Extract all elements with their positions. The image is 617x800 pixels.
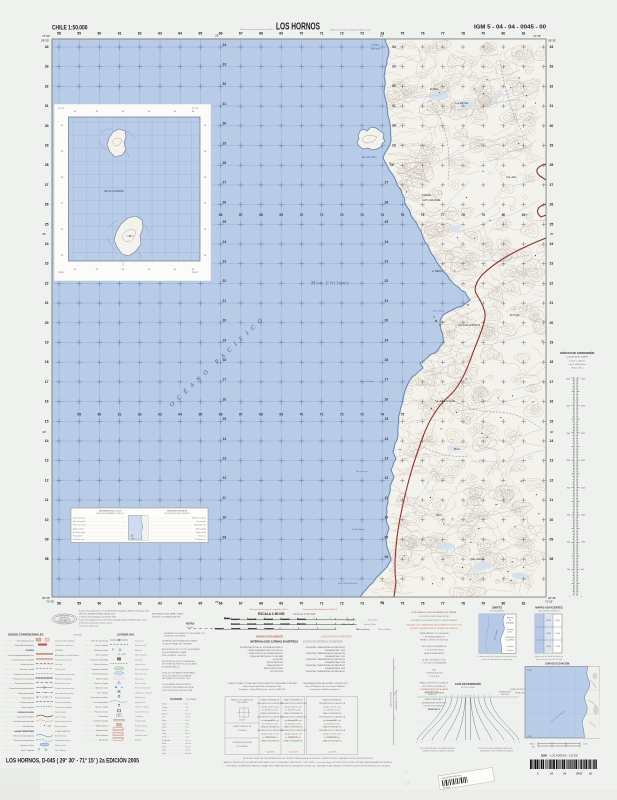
svg-text:79: 79: [481, 32, 485, 36]
svg-text:COSTEROS PROVIENEN DEL SHOA: COSTEROS PROVIENEN DEL SHOA: [162, 686, 194, 689]
svg-text:CONTOUR INTERVAL 50 METERS: CONTOUR INTERVAL 50 METERS: [303, 641, 343, 644]
svg-text:El Olivo: El Olivo: [430, 87, 439, 91]
svg-text:Pta. Cruz del Pecho: Pta. Cruz del Pecho: [337, 582, 358, 585]
svg-text:21: 21: [385, 299, 389, 303]
svg-text:72: 72: [340, 413, 344, 417]
svg-text:15: 15: [223, 417, 227, 421]
svg-text:x 235: x 235: [121, 654, 125, 656]
svg-text:Límite comunal: Límite comunal: [21, 706, 34, 709]
svg-text:Power transmission line: Power transmission line: [55, 687, 74, 690]
svg-text:29°30': 29°30': [41, 39, 49, 43]
svg-text:32: 32: [392, 84, 396, 88]
svg-text:Rock in water: Rock in water: [135, 682, 147, 685]
svg-text:DEPARTAMENTO DE GEODESIA: DEPARTAMENTO DE GEODESIA: [420, 632, 450, 635]
svg-text:Caleta de pescadores: Caleta de pescadores: [90, 696, 108, 699]
svg-text:UNIVERSAL TRANSVERSAL DE MERCA: UNIVERSAL TRANSVERSAL DE MERCATOR: [306, 646, 346, 649]
svg-text:Windmill: Windmill: [135, 650, 143, 652]
svg-text:Pta. Choros: Pta. Choros: [432, 310, 445, 313]
svg-text:26: 26: [550, 203, 554, 207]
svg-text:12: 12: [45, 478, 49, 482]
svg-text:24: 24: [223, 240, 227, 244]
svg-text:Trail or track: Trail or track: [55, 668, 65, 671]
svg-text:VARÍA 8' ANUALMENTE: VARÍA 8' ANUALMENTE: [424, 652, 445, 655]
svg-text:Cove: Cove: [185, 707, 189, 709]
svg-text:34: 34: [45, 45, 49, 49]
svg-text:25: 25: [550, 222, 554, 226]
svg-text:Landing strip: Landing strip: [135, 720, 146, 723]
svg-text:67: 67: [239, 32, 243, 36]
svg-text:22: 22: [45, 281, 49, 285]
svg-text:Historic ruins: Historic ruins: [135, 663, 146, 666]
svg-text:NOMBRES QUE FIGURAN EN EL MAPA: NOMBRES QUE FIGURAN EN EL MAPA Y: [162, 640, 198, 643]
svg-text:LÍMITE DE COSTA: LÍMITE DE COSTA: [390, 692, 393, 708]
svg-text:21: 21: [223, 299, 227, 303]
svg-text:68: 68: [259, 413, 263, 417]
svg-text:Sendero o huella: Sendero o huella: [20, 668, 35, 671]
svg-text:20: 20: [223, 319, 227, 323]
svg-text:76: 76: [421, 32, 425, 36]
svg-text:08: 08: [550, 557, 554, 561]
svg-text:800: 800: [567, 487, 570, 489]
svg-text:Aeródromo: Aeródromo: [99, 739, 108, 742]
svg-text:65: 65: [199, 602, 203, 606]
svg-text:74: 74: [380, 413, 384, 417]
svg-text:66: 66: [219, 413, 223, 417]
svg-text:CUADRÍCULA UTM: CUADRÍCULA UTM: [426, 672, 443, 675]
svg-text:D-040: D-040: [546, 620, 551, 622]
svg-text:79: 79: [481, 213, 485, 217]
svg-text:Bay: Bay: [185, 704, 188, 706]
svg-text:08: 08: [45, 557, 49, 561]
svg-text:Metros | Pies: Metros | Pies: [572, 366, 583, 369]
svg-text:67: 67: [239, 213, 243, 217]
svg-text:ESTE MAPA NO DEROGA MAPAS QUE: ESTE MAPA NO DEROGA MAPAS QUE TRATAN: [412, 611, 457, 614]
svg-text:La demarcación de los límites: La demarcación de los límites de este ma…: [478, 655, 517, 658]
svg-text:Knoll: Knoll: [185, 727, 190, 729]
svg-text:GEOGRÁFICO: GEOGRÁFICO: [59, 620, 71, 623]
svg-text:LISTA DE TOPÓNIMOS: LISTA DE TOPÓNIMOS: [164, 635, 186, 638]
svg-text:Proyección y publicación a esc: Proyección y publicación a escala del In…: [79, 610, 149, 613]
svg-text:32: 32: [223, 82, 227, 86]
svg-text:200: 200: [567, 569, 570, 571]
svg-text:Referencia espacial: Referencia espacial: [192, 518, 207, 520]
svg-text:Llano: Llano: [162, 723, 167, 725]
svg-text:All weather road hard surface: All weather road hard surface: [55, 654, 79, 657]
svg-text:PARA DETERMINAR LA: PARA DETERMINAR LA: [261, 739, 280, 742]
svg-text:27: 27: [550, 183, 554, 187]
svg-text:75: 75: [401, 32, 405, 36]
svg-text:DE ESTE DOCUMENTO: DE ESTE DOCUMENTO: [424, 706, 446, 708]
svg-text:10: 10: [346, 618, 348, 620]
svg-text:30: 30: [550, 124, 554, 128]
svg-text:75: 75: [401, 602, 405, 606]
svg-text:lea 100.000 m al este: lea 100.000 m al este: [262, 709, 278, 712]
svg-text:62: 62: [138, 602, 142, 606]
svg-text:60: 60: [98, 32, 102, 36]
svg-text:ejemplo: punto de carta: ejemplo: punto de carta: [323, 705, 341, 708]
svg-text:UNIVERSAL TRANSVERSAL DE MERCA: UNIVERSAL TRANSVERSAL DE MERCATOR: [306, 658, 346, 661]
svg-text:73: 73: [360, 32, 364, 36]
svg-text:Statute Miles: Statute Miles: [364, 623, 376, 626]
svg-text:09: 09: [45, 538, 49, 542]
svg-text:QUE FIGURAN EN EL MAPA: QUE FIGURAN EN EL MAPA: [162, 651, 187, 654]
svg-text:5200: 5200: [581, 379, 585, 381]
svg-text:Pta. del Olivo: Pta. del Olivo: [361, 156, 377, 159]
svg-text:Camino de ripio transitable: Camino de ripio transitable: [12, 659, 34, 662]
svg-text:C.4: C.4: [404, 782, 409, 786]
svg-text:16: 16: [223, 397, 227, 401]
svg-text:INFORMACIÓN DEL MAPA O PARA: INFORMACIÓN DEL MAPA O PARA: [152, 613, 183, 616]
svg-text:17: 17: [550, 380, 554, 384]
svg-text:Carta 5070: Carta 5070: [266, 736, 275, 739]
svg-text:71°15': 71°15': [533, 34, 541, 38]
svg-text:Y DEL DERROTERO DE LA COSTA: Y DEL DERROTERO DE LA COSTA: [162, 689, 193, 692]
svg-text:CIFRAS ALTIMÉTRICAS / N. DEL M: CIFRAS ALTIMÉTRICAS / N. DEL MAR: [250, 655, 284, 658]
svg-text:71°50': 71°50': [58, 108, 65, 110]
svg-text:0: 0: [581, 596, 582, 598]
svg-text:LEGEND: LEGEND: [73, 635, 82, 637]
svg-text:LOS LÍMITES EN FORMA OFICIAL: LOS LÍMITES EN FORMA OFICIAL: [419, 615, 449, 618]
svg-text:71: 71: [320, 602, 324, 606]
svg-text:20: 20: [550, 321, 554, 325]
svg-text:81: 81: [522, 602, 526, 606]
svg-text:400: 400: [567, 542, 570, 544]
svg-text:1.000: 1.000: [583, 744, 587, 746]
svg-text:PARA DETERMINAR LA: PARA DETERMINAR LA: [261, 699, 280, 702]
svg-text:45: 45: [465, 695, 467, 697]
svg-text:Malla especial: Malla especial: [196, 528, 207, 530]
svg-text:Lighthouse - Beacon: Lighthouse - Beacon: [135, 691, 152, 694]
svg-text:Base: UTM (Plano 19) al sur, D: Base: UTM (Plano 19) al sur, Datum: PSAD…: [305, 685, 344, 688]
svg-text:lea 100.000 m al este: lea 100.000 m al este: [262, 722, 278, 725]
svg-text:Carta 5070: Carta 5070: [328, 751, 337, 754]
svg-text:Quebrada: Quebrada: [506, 629, 513, 631]
svg-text:20: 20: [385, 319, 389, 323]
svg-text:12: 12: [550, 478, 554, 482]
svg-text:Arrecife - Islote: Arrecife - Islote: [96, 687, 108, 690]
svg-text:Ferrocarril en uso normal: Ferrocarril en uso normal: [13, 678, 34, 681]
svg-text:3: 3: [264, 618, 265, 620]
svg-text:29°30': 29°30': [548, 39, 556, 43]
svg-text:71: 71: [320, 413, 324, 417]
svg-text:11: 11: [385, 496, 389, 500]
svg-text:73: 73: [360, 602, 364, 606]
svg-text:73: 73: [360, 213, 364, 217]
svg-text:20: 20: [45, 321, 49, 325]
svg-text:25: 25: [45, 222, 49, 226]
svg-text:de Mar: de Mar: [508, 632, 513, 634]
svg-text:lea 100.000 m al este: lea 100.000 m al este: [285, 709, 301, 712]
svg-text:INLAND WATERS: INLAND WATERS: [55, 730, 71, 733]
svg-text:33: 33: [223, 63, 227, 67]
svg-text:Ravine: Ravine: [185, 740, 191, 742]
svg-text:62: 62: [138, 413, 142, 417]
svg-text:71: 71: [320, 32, 324, 36]
svg-text:81: 81: [522, 32, 526, 36]
svg-text:27: 27: [45, 183, 49, 187]
svg-text:0: 0: [569, 596, 570, 598]
svg-text:PARA DETERMINAR LA: PARA DETERMINAR LA: [323, 739, 342, 742]
svg-text:Public building: Public building: [135, 726, 147, 728]
svg-text:13: 13: [385, 457, 389, 461]
svg-text:69: 69: [279, 602, 283, 606]
svg-text:Curva de nivel intermedia: Curva de nivel intermedia: [13, 720, 35, 723]
svg-text:CHILE MAPA OFICIAL DEL ESTADO,: CHILE MAPA OFICIAL DEL ESTADO, PROYECCIÓ…: [302, 682, 348, 685]
svg-text:LOS HORNOS, D-045 ( 29° 30' -: LOS HORNOS, D-045 ( 29° 30' - 71° 15' ) …: [6, 756, 139, 765]
svg-text:DESIGNACIÓN DE CUADRÍCULA: DESIGNACIÓN DE CUADRÍCULA: [280, 702, 307, 705]
svg-text:Valle: Valle: [162, 750, 166, 752]
svg-text:3900: 3900: [581, 433, 585, 435]
svg-text:19: 19: [45, 341, 49, 345]
svg-text:VIVIENDA: VIVIENDA: [25, 649, 34, 652]
svg-text:Fence or wall: Fence or wall: [135, 644, 147, 647]
svg-text:D-045: D-045: [546, 633, 551, 635]
svg-text:34: 34: [223, 43, 227, 47]
svg-text:edición convencional 1:50.000: edición convencional 1:50.000 IGM: [536, 659, 563, 661]
svg-text:14: 14: [385, 437, 389, 441]
svg-text:1 metro = 3.28 pies: 1 metro = 3.28 pies: [569, 360, 585, 363]
svg-text:22: 22: [385, 279, 389, 283]
svg-text:69: 69: [279, 213, 283, 217]
svg-text:DESIGNACIÓN DE CUADRÍCULA: DESIGNACIÓN DE CUADRÍCULA: [280, 729, 307, 732]
svg-text:79: 79: [481, 602, 485, 606]
svg-text:1° Edición Geomorfológica del: 1° Edición Geomorfológica del IGM de 199…: [79, 616, 116, 619]
svg-text:x 235: x 235: [47, 726, 51, 728]
svg-text:30: 30: [223, 122, 227, 126]
svg-text:INTERVALO DE CURVAS 50 METROS: INTERVALO DE CURVAS 50 METROS: [250, 640, 298, 644]
svg-text:77: 77: [441, 213, 445, 217]
svg-text:Cemetery: Cemetery: [135, 715, 143, 718]
svg-text:Beach: Beach: [185, 733, 190, 735]
svg-text:N° Clasificación: N° Clasificación: [195, 539, 206, 541]
svg-text:71°30': 71°30': [42, 34, 50, 38]
svg-text:78: 78: [461, 32, 465, 36]
svg-text:Metros: Metros: [224, 617, 230, 620]
svg-text:Military area: Military area: [135, 729, 146, 732]
svg-text:ejemplo: punto de carta: ejemplo: punto de carta: [323, 733, 341, 736]
svg-text:NOMBRES GEOGRÁFICOS DEL MAPA Y: NOMBRES GEOGRÁFICOS DEL MAPA Y SU: [164, 632, 206, 635]
svg-text:COQUIMBO: COQUIMBO: [506, 640, 516, 642]
svg-text:35': 35': [42, 232, 46, 236]
svg-text:Church - Chapel: Church - Chapel: [135, 706, 149, 709]
svg-text:Curva de nivel índice: Curva de nivel índice: [17, 716, 34, 719]
svg-text:27: 27: [223, 181, 227, 185]
svg-text:Airfield: Airfield: [135, 739, 141, 742]
svg-text:Lake or pond: Lake or pond: [55, 744, 66, 747]
svg-text:16: 16: [45, 400, 49, 404]
svg-text:Salar: Salar: [162, 742, 167, 745]
svg-text:(BOUNDARIES): (BOUNDARIES): [490, 610, 505, 613]
svg-text:24: 24: [550, 242, 554, 246]
svg-text:Proyección y publicación por e: Proyección y publicación por el Institut…: [79, 619, 146, 622]
svg-text:08: 08: [385, 555, 389, 559]
svg-text:28: 28: [45, 163, 49, 167]
svg-text:ejemplo: punto de carta: ejemplo: punto de carta: [261, 705, 279, 708]
svg-text:Laguna o charca: Laguna o charca: [20, 744, 35, 747]
svg-text:71°30': 71°30': [46, 600, 54, 604]
svg-text:31: 31: [45, 104, 49, 108]
svg-text:0.2: 0.2: [518, 742, 520, 744]
svg-text:J-7: J-7: [404, 770, 409, 774]
svg-text:El marco int. lo genera el pla: El marco int. lo genera el plano IGM n.: [240, 28, 275, 31]
svg-text:67: 67: [239, 413, 243, 417]
svg-text:SE DEJA 10 CM AL SUR: SEGUNDA: SE DEJA 10 CM AL SUR: SEGUNDA EDICIÓN DE…: [243, 757, 373, 760]
svg-text:71°15': 71°15': [545, 600, 553, 604]
svg-text:CONFECCIONADO Y PUBLICADO POR: CONFECCIONADO Y PUBLICADO POR EL INSTITU…: [227, 682, 297, 685]
svg-text:Plain: Plain: [185, 723, 189, 725]
svg-text:INSTITUTO: INSTITUTO: [60, 617, 70, 619]
svg-text:32: 32: [45, 84, 49, 88]
svg-text:GLOSSARY: GLOSSARY: [186, 698, 197, 701]
svg-text:1400: 1400: [566, 406, 570, 408]
svg-text:80: 80: [502, 32, 506, 36]
svg-text:29°02': 29°02': [192, 272, 199, 274]
svg-text:UNIVERSAL TRANSVERSAL DE MERCA: UNIVERSAL TRANSVERSAL DE MERCATOR: [306, 670, 346, 673]
svg-text:32: 32: [550, 84, 554, 88]
svg-text:29: 29: [45, 144, 49, 148]
svg-text:LOS PLANOS, LA IMPRESIÓN GRÁFI: LOS PLANOS, LA IMPRESIÓN GRÁFICA Y DEMÁS…: [226, 765, 391, 768]
svg-text:5: 5: [231, 618, 232, 620]
svg-text:Curva batimétrica: Curva batimétrica: [94, 701, 109, 704]
svg-text:DISEÑO CUADRÍCULA: DISEÑO CUADRÍCULA: [233, 725, 252, 728]
svg-text:24: 24: [385, 240, 389, 244]
svg-text:Railroad not in use: Railroad not in use: [55, 682, 70, 685]
svg-text:LOS NOMBRES DE ACCIDENTES: LOS NOMBRES DE ACCIDENTES: [162, 683, 192, 686]
svg-text:17: 17: [45, 380, 49, 384]
svg-text:13: 13: [223, 457, 227, 461]
svg-text:Cta. Alta: Cta. Alta: [506, 175, 516, 179]
svg-text:Depósito combustible: Depósito combustible: [90, 658, 108, 661]
svg-text:28: 28: [223, 161, 227, 165]
svg-text:Río o estero permanente: Río o estero permanente: [14, 735, 34, 738]
svg-text:78: 78: [461, 213, 465, 217]
svg-text:Carta 5070: Carta 5070: [289, 751, 298, 754]
svg-text:2: 2: [280, 618, 281, 620]
svg-text:29: 29: [392, 143, 396, 147]
svg-text:referencial / Boundaries are: referencial / Boundaries are approximate: [482, 658, 513, 661]
svg-text:76: 76: [421, 213, 425, 217]
svg-text:DATUM VERTICAL: DATUM VERTICAL: [267, 661, 283, 664]
svg-text:22: 22: [223, 279, 227, 283]
svg-text:Mine: Mine: [185, 730, 189, 732]
svg-text:SON OFICIALES - IGM 2005: SON OFICIALES - IGM 2005: [162, 654, 186, 657]
svg-text:Vegetación matorral: Vegetación matorral: [92, 668, 109, 671]
svg-text:13: 13: [45, 459, 49, 463]
svg-text:61: 61: [118, 602, 122, 606]
svg-text:GEOMETRÍA OFICIAL: EL SISTEMA: GEOMETRÍA OFICIAL: EL SISTEMA GEODÉSICO: [240, 646, 284, 649]
svg-text:10: 10: [45, 518, 49, 522]
svg-text:MAPAS ADYACENTES: MAPAS ADYACENTES: [535, 606, 563, 610]
svg-text:MAPA DOCUMENTO VECTOR, AMPLIAC: MAPA DOCUMENTO VECTOR, AMPLIACIONES HAST…: [224, 761, 394, 764]
svg-text:Range: Range: [185, 746, 190, 748]
svg-text:Regional boundary: Regional boundary: [55, 697, 71, 700]
svg-text:26: 26: [223, 200, 227, 204]
svg-text:64: 64: [178, 413, 182, 417]
svg-text:La Higuera: La Higuera: [506, 646, 514, 648]
svg-text:23: 23: [550, 262, 554, 266]
svg-text:La Serena: La Serena: [506, 650, 513, 652]
svg-text:ejemplo: punto de carta: ejemplo: punto de carta: [284, 705, 302, 708]
svg-text:70: 70: [300, 413, 304, 417]
svg-text:SCALE 1:50.000: SCALE 1:50.000: [293, 612, 316, 616]
svg-text:Salt flat: Salt flat: [185, 742, 192, 745]
svg-text:Cota de altura: Cota de altura: [22, 725, 35, 728]
svg-text:3200: 3200: [581, 460, 585, 462]
svg-text:23: 23: [223, 260, 227, 264]
svg-text:73: 73: [360, 413, 364, 417]
svg-text:33: 33: [45, 65, 49, 69]
svg-text:SUDAMERICANO 1956: SUDAMERICANO 1956: [325, 649, 345, 652]
svg-text:Carta 5070: Carta 5070: [328, 736, 337, 739]
svg-text:(ADJOINING SHEETS): (ADJOINING SHEETS): [539, 610, 560, 613]
svg-text:28: 28: [550, 163, 554, 167]
svg-text:GEOGRÁFICAS FUERON CALCULADAS: GEOGRÁFICAS FUERON CALCULADAS: [162, 663, 197, 666]
svg-text:Mina o cantera: Mina o cantera: [96, 654, 109, 657]
svg-text:PARA EL CENTRO DE LA HOJA: PARA EL CENTRO DE LA HOJA: [420, 639, 448, 642]
svg-text:80: 80: [502, 602, 506, 606]
svg-text:11: 11: [223, 496, 227, 500]
svg-text:63: 63: [158, 32, 162, 36]
svg-text:PARA DETERMINAR LA: PARA DETERMINAR LA: [284, 739, 303, 742]
svg-text:PARA DETERMINAR LA: PARA DETERMINAR LA: [261, 712, 280, 715]
svg-text:LOS HORNOS: LOS HORNOS: [276, 21, 320, 33]
svg-text:Islote: Islote: [162, 719, 166, 722]
svg-text:63: 63: [158, 413, 162, 417]
svg-text:31: 31: [223, 102, 227, 106]
svg-text:40': 40': [550, 430, 554, 434]
svg-text:Spot elevation: Spot elevation: [55, 725, 67, 728]
svg-text:Valley: Valley: [185, 750, 190, 752]
svg-text:Faro - Baliza: Faro - Baliza: [98, 691, 109, 694]
svg-text:DESIGNACIÓN DE CUADRÍCULA: DESIGNACIÓN DE CUADRÍCULA: [319, 729, 346, 732]
svg-text:30: 30: [392, 124, 396, 128]
svg-text:29: 29: [223, 141, 227, 145]
svg-text:64: 64: [178, 32, 182, 36]
svg-text:Camino de tierra: Camino de tierra: [20, 663, 35, 666]
svg-text:33: 33: [550, 65, 554, 69]
svg-text:Nautical Miles: Nautical Miles: [378, 628, 391, 631]
svg-text:12: 12: [223, 476, 227, 480]
svg-text:20: 20: [478, 695, 480, 697]
svg-text:4: 4: [247, 618, 248, 620]
svg-text:Río o estero intermitente: Río o estero intermitente: [14, 739, 34, 742]
svg-text:HOUSES: HOUSES: [55, 650, 64, 652]
svg-text:66: 66: [219, 32, 223, 36]
svg-text:600: 600: [581, 569, 584, 571]
svg-text:Power line: Power line: [135, 640, 144, 643]
svg-text:19: 19: [550, 341, 554, 345]
svg-text:Perennial river: Perennial river: [55, 735, 67, 738]
svg-text:0.2: 0.2: [416, 742, 418, 744]
svg-text:Código versión: Código versión: [195, 532, 206, 534]
svg-text:Cerro: Cerro: [162, 709, 167, 712]
svg-text:LOMAS: LOMAS: [422, 193, 431, 197]
svg-text:NIVELES MEDIOS: NIVELES MEDIOS: [267, 665, 284, 667]
svg-text:NOTA: LA TOPONIMIA FUE REVISAD: NOTA: LA TOPONIMIA FUE REVISADA: [162, 671, 196, 674]
svg-text:Gravel loose surface: Gravel loose surface: [55, 659, 72, 662]
svg-text:Lla. LOS CHOROS: Lla. LOS CHOROS: [458, 323, 480, 327]
svg-text:SUGERENCIAS RESPECTO: SUGERENCIAS RESPECTO: [422, 701, 447, 704]
svg-text:0: 0: [314, 618, 315, 620]
svg-text:Fishing cove: Fishing cove: [135, 697, 145, 699]
svg-text:Nueva Santa Isabel 1640 - Sant: Nueva Santa Isabel 1640 - Santiago de Ch…: [243, 685, 281, 688]
svg-text:CONTOURS: CONTOURS: [55, 712, 66, 714]
svg-text:DESIGNACIÓN DE CUADRÍCULA: DESIGNACIÓN DE CUADRÍCULA: [280, 716, 307, 719]
svg-text:USO: USO: [432, 669, 437, 671]
svg-text:67: 67: [239, 602, 243, 606]
svg-text:60: 60: [98, 413, 102, 417]
svg-text:LEYENDA VIAL: LEYENDA VIAL: [117, 634, 135, 637]
